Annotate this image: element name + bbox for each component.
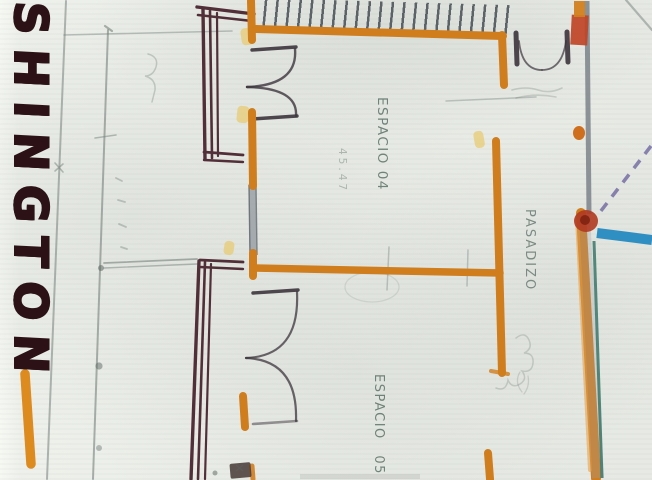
wall-segment xyxy=(203,9,205,159)
pencil-smudge xyxy=(98,265,104,271)
dark-dot xyxy=(213,471,218,476)
blue-line xyxy=(597,233,652,240)
door-swing-arc xyxy=(246,358,296,421)
pencil-line xyxy=(104,259,197,263)
pencil-circle xyxy=(345,272,399,302)
wall-segment xyxy=(205,264,211,479)
door-jamb xyxy=(252,116,297,119)
edge-smudge xyxy=(300,474,420,479)
room-label-espacio-05: ESPACIO 05 xyxy=(371,374,386,475)
orange-dot xyxy=(573,126,585,140)
wall-segment xyxy=(204,160,243,162)
pencil-line xyxy=(93,30,108,479)
red-junction-core xyxy=(580,215,590,225)
orange-block xyxy=(574,1,585,17)
room-label-espacio-04: ESPACIO 04 xyxy=(374,97,389,191)
orange-margin-stroke xyxy=(25,374,31,464)
pencil-line xyxy=(467,250,468,286)
pencil-tick xyxy=(95,135,116,138)
door-jamb xyxy=(253,421,297,424)
purple-dashed-line xyxy=(597,146,651,216)
orange-post xyxy=(252,112,253,186)
red-block xyxy=(570,15,589,46)
highlight-blob xyxy=(223,240,235,255)
orange-corner xyxy=(502,35,504,85)
orange-beam-mid xyxy=(253,268,500,273)
orange-post xyxy=(251,1,252,40)
door-swing-arc xyxy=(247,49,295,87)
orange-column xyxy=(496,141,502,373)
dark-smudge xyxy=(229,462,251,479)
door-jamb xyxy=(252,47,296,50)
window-edge xyxy=(256,185,257,255)
orange-tick xyxy=(252,466,253,479)
window-glass xyxy=(249,184,257,256)
door-jamb xyxy=(516,33,517,64)
door-swing-arc xyxy=(542,41,566,70)
doors-ink xyxy=(246,32,568,424)
door-jamb xyxy=(253,290,298,293)
orange-beam-top xyxy=(256,29,503,36)
highlight-blob xyxy=(473,130,486,148)
door-swing-arc xyxy=(246,292,297,358)
area-annotation: 45.47 xyxy=(336,148,348,193)
orange-post xyxy=(243,396,245,427)
highlight-blobs xyxy=(223,27,485,255)
wall-segment xyxy=(210,11,212,158)
pencil-smudge xyxy=(96,445,102,451)
pencil-line xyxy=(104,264,197,268)
street-name-label: SHINGTON xyxy=(5,0,57,388)
pencil-guides xyxy=(47,0,652,479)
bottom-marks xyxy=(213,462,421,479)
wall-segment xyxy=(197,7,254,14)
wall-segment xyxy=(200,267,243,269)
pencil-smudge xyxy=(95,362,102,369)
wall-segment xyxy=(217,13,218,156)
scanned-floor-plan: SHINGTON ESPACIO 04 45.47 PASADIZO ESPAC… xyxy=(0,0,652,480)
wall-segment xyxy=(198,15,252,21)
pencil-diagonal xyxy=(626,0,652,30)
window-band xyxy=(252,184,253,256)
pencil-flower-sketch xyxy=(517,372,528,394)
orange-post xyxy=(488,453,490,479)
door-swing-arc xyxy=(519,41,542,70)
room-label-pasadizo: PASADIZO xyxy=(522,209,537,291)
highlight-blob xyxy=(236,105,250,123)
pencil-ticks xyxy=(116,178,127,249)
right-edge-lines xyxy=(570,1,652,478)
wall-segment xyxy=(204,152,243,155)
pencil-line xyxy=(64,31,232,35)
orange-marker-walls xyxy=(25,1,596,479)
window-edge xyxy=(249,185,250,255)
pencil-scribble xyxy=(512,88,562,98)
pencil-line xyxy=(446,97,536,101)
pencil-scribble xyxy=(145,54,157,102)
wall-segment xyxy=(200,260,243,262)
floor-plan-drawing xyxy=(0,0,652,480)
door-jamb xyxy=(567,32,568,62)
